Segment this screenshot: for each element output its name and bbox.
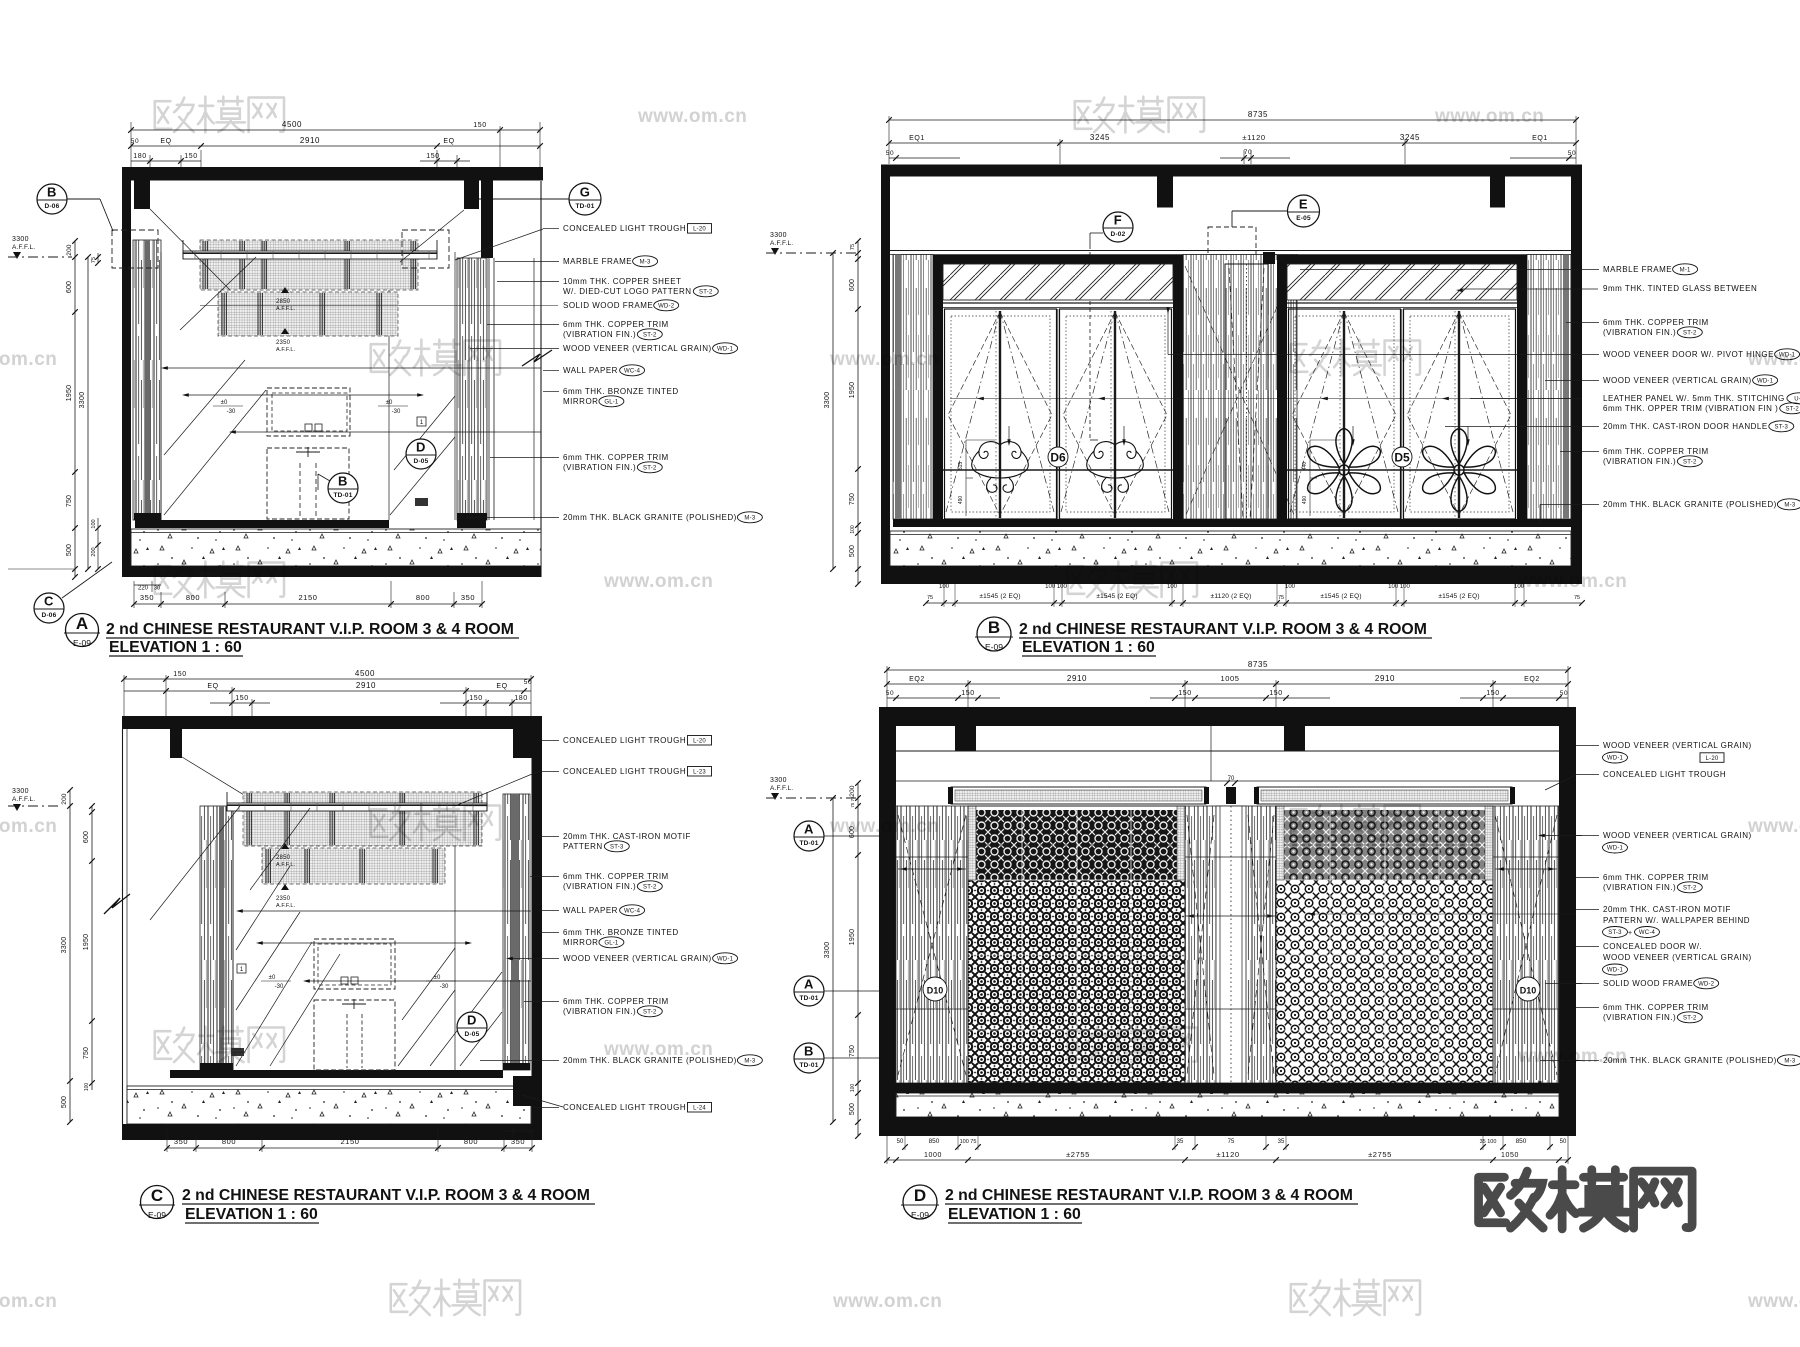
svg-text:D10: D10 [1520,986,1537,996]
svg-text:30: 30 [505,1132,511,1138]
svg-text:CONCEALED LIGHT TROUGH: CONCEALED LIGHT TROUGH [563,224,686,233]
svg-text:WOOD VENEER (VERTICAL GRAIN): WOOD VENEER (VERTICAL GRAIN) [1603,831,1752,840]
svg-text:850: 850 [929,1138,940,1145]
svg-text:www.om.cn: www.om.cn [0,816,57,837]
svg-text:100: 100 [91,519,97,528]
svg-text:3300: 3300 [79,392,86,409]
svg-text:4500: 4500 [355,669,375,678]
svg-text:350: 350 [174,1137,188,1146]
svg-text:ST-2: ST-2 [643,1010,657,1016]
svg-text:WD-2: WD-2 [658,304,675,310]
svg-text:150: 150 [184,153,197,160]
svg-text:2910: 2910 [356,681,376,690]
svg-text:B: B [804,1044,814,1059]
svg-text:±0: ±0 [269,975,276,981]
svg-text:WOOD VENEER (VERTICAL GRAIN): WOOD VENEER (VERTICAL GRAIN) [1603,953,1752,962]
svg-text:ST-2: ST-2 [1683,460,1697,466]
svg-text:EQ: EQ [443,138,454,145]
svg-text:PATTERN: PATTERN [563,842,603,851]
svg-text:GL-1: GL-1 [604,400,619,406]
svg-text:www.om.cn: www.om.cn [0,349,57,370]
svg-text:L-23: L-23 [693,770,706,776]
svg-text:150: 150 [235,695,248,702]
svg-text:SOLID WOOD FRAME: SOLID WOOD FRAME [1603,979,1693,988]
svg-text:50: 50 [131,138,139,145]
svg-text:www.om.cn: www.om.cn [829,349,939,370]
svg-text:ST-2: ST-2 [699,290,713,296]
svg-text:U-5: U-5 [1794,397,1800,403]
svg-text:CONCEALED LIGHT TROUGH: CONCEALED LIGHT TROUGH [563,1103,686,1112]
svg-text:2 nd CHINESE RESTAURANT V.I.P.: 2 nd CHINESE RESTAURANT V.I.P. ROOM 3 & … [182,1187,590,1204]
svg-text:1950: 1950 [849,929,856,945]
svg-text:ST-2: ST-2 [643,885,657,891]
svg-text:490: 490 [958,496,964,505]
svg-text:6mm THK. COPPER TRIM: 6mm THK. COPPER TRIM [563,872,669,881]
svg-text:2910: 2910 [1375,674,1395,683]
svg-text:6mm THK. BRONZE TINTED: 6mm THK. BRONZE TINTED [563,928,679,937]
svg-text:ST-2: ST-2 [1785,407,1799,413]
svg-text:A.F.F.L.: A.F.F.L. [276,903,296,909]
svg-text:75: 75 [927,595,933,601]
svg-text:www.om.cn: www.om.cn [603,571,713,592]
svg-text:2 nd CHINESE RESTAURANT V.I.P.: 2 nd CHINESE RESTAURANT V.I.P. ROOM 3 & … [945,1187,1353,1204]
svg-text:TD-01: TD-01 [333,492,352,499]
svg-text:M-1: M-1 [1680,268,1691,274]
svg-text:35: 35 [1278,1139,1285,1145]
svg-text:50: 50 [897,1139,904,1145]
svg-text:www.om.cn: www.om.cn [829,816,939,837]
svg-text:500: 500 [849,1103,856,1115]
svg-text:D-05: D-05 [465,1031,480,1038]
svg-text:WC-4: WC-4 [1639,930,1656,936]
svg-text:6mm THK. OPPER TRIM (VIBRATION: 6mm THK. OPPER TRIM (VIBRATION FIN ) [1603,404,1778,413]
svg-text:EQ: EQ [496,683,507,690]
svg-text:1005: 1005 [1220,674,1239,683]
svg-text:CONCEALED LIGHT TROUGH: CONCEALED LIGHT TROUGH [563,767,686,776]
svg-text:ELEVATION 1 : 60: ELEVATION 1 : 60 [1022,639,1155,656]
svg-text:CONCEALED LIGHT TROUGH: CONCEALED LIGHT TROUGH [563,736,686,745]
svg-text:180: 180 [133,153,146,160]
svg-text:100: 100 [84,1083,90,1092]
svg-text:(VIBRATION FIN.): (VIBRATION FIN.) [563,882,636,891]
svg-text:ST-2: ST-2 [1683,1016,1697,1022]
svg-text:3300: 3300 [770,232,787,239]
svg-text:(VIBRATION FIN.): (VIBRATION FIN.) [563,463,636,472]
svg-text:www.om.cn: www.om.cn [1747,1291,1800,1312]
svg-text:20mm THK. CAST-IRON MOTIF: 20mm THK. CAST-IRON MOTIF [1603,905,1731,914]
svg-text:L-20: L-20 [693,227,706,233]
svg-text:www.om.cn: www.om.cn [1517,1046,1627,1067]
svg-text:D5: D5 [1394,451,1410,465]
svg-text:8735: 8735 [1248,110,1268,119]
svg-text:TD-01: TD-01 [799,840,818,847]
svg-text:100 75: 100 75 [960,1139,977,1145]
svg-text:-30: -30 [392,409,401,415]
svg-text:3300: 3300 [61,937,68,954]
svg-text:750: 750 [849,493,856,505]
svg-text:TD-01: TD-01 [575,203,594,210]
svg-text:150: 150 [426,153,439,160]
svg-text:6mm THK. BRONZE TINTED: 6mm THK. BRONZE TINTED [563,387,679,396]
svg-text:MARBLE FRAME: MARBLE FRAME [1603,265,1672,274]
svg-text:ST-2: ST-2 [643,466,657,472]
svg-text:WD-1: WD-1 [1757,379,1774,385]
svg-text:20mm THK. BLACK GRANITE (POLIS: 20mm THK. BLACK GRANITE (POLISHED) [1603,500,1777,509]
svg-text:600: 600 [66,281,73,293]
svg-text:D6: D6 [1050,451,1066,465]
svg-text:500: 500 [849,545,856,557]
svg-text:3300: 3300 [824,942,831,959]
svg-text:1950: 1950 [83,934,90,950]
svg-text:WD-2: WD-2 [1698,982,1715,988]
svg-text:±1120: ±1120 [1216,1150,1239,1159]
svg-text:-30: -30 [227,409,236,415]
svg-text:350: 350 [140,593,154,602]
svg-text:L-20: L-20 [1706,756,1719,762]
svg-text:3300: 3300 [824,392,831,409]
svg-text:G: G [580,185,591,200]
svg-text:50: 50 [886,150,894,157]
svg-text:515: 515 [958,462,964,471]
svg-text:±0: ±0 [386,400,393,406]
svg-text:E-09: E-09 [73,638,91,648]
svg-text:75: 75 [1228,1139,1235,1145]
svg-text:750: 750 [849,1045,856,1057]
svg-text:W/. DIED-CUT LOGO PATTERN: W/. DIED-CUT LOGO PATTERN [563,287,692,296]
svg-text:±1545 (2 EQ): ±1545 (2 EQ) [1438,593,1479,600]
svg-text:A: A [76,614,88,633]
svg-text:±1545 (2 EQ): ±1545 (2 EQ) [979,593,1020,600]
svg-text:ST-3: ST-3 [610,845,624,851]
svg-text:850: 850 [1516,1138,1527,1145]
svg-text:D-06: D-06 [45,203,60,210]
svg-text:6mm THK. COPPER TRIM: 6mm THK. COPPER TRIM [1603,318,1709,327]
svg-text:750: 750 [83,1047,90,1059]
svg-text:M-3: M-3 [1784,503,1795,509]
svg-text:600: 600 [849,279,856,291]
svg-text:A.F.F.L.: A.F.F.L. [12,796,35,803]
svg-text:-30: -30 [440,984,449,990]
svg-text:A.F.F.L.: A.F.F.L. [770,785,793,792]
svg-text:(VIBRATION FIN.): (VIBRATION FIN.) [563,330,636,339]
svg-text:150: 150 [473,122,486,129]
svg-text:220: 220 [138,586,149,592]
svg-text:GL-1: GL-1 [604,941,619,947]
svg-text:350: 350 [511,1137,525,1146]
svg-text:MIRROR: MIRROR [563,397,598,406]
svg-text:EQ2: EQ2 [1524,676,1540,683]
svg-text:www.om.cn: www.om.cn [1434,106,1544,127]
svg-text:8735: 8735 [1248,660,1268,669]
svg-text:D: D [914,1186,926,1205]
svg-text:ELEVATION 1 : 60: ELEVATION 1 : 60 [185,1206,318,1223]
svg-text:M-3: M-3 [1784,1059,1795,1065]
svg-text:3300: 3300 [12,788,29,795]
svg-text:2910: 2910 [1067,674,1087,683]
svg-text:75 75: 75 75 [850,796,855,808]
svg-text:CONCEALED DOOR W/.: CONCEALED DOOR W/. [1603,942,1702,951]
svg-text:3300: 3300 [12,236,29,243]
svg-text:6mm THK. COPPER TRIM: 6mm THK. COPPER TRIM [1603,447,1709,456]
svg-text:±0: ±0 [434,975,441,981]
svg-text:WD-1: WD-1 [1607,846,1624,852]
svg-text:TD-01: TD-01 [799,995,818,1002]
svg-text:C: C [44,594,54,609]
svg-text:+: + [1628,930,1632,937]
svg-text:20mm THK. BLACK GRANITE (POLIS: 20mm THK. BLACK GRANITE (POLISHED) [563,513,737,522]
svg-text:75: 75 [850,244,856,250]
svg-text:A.F.F.L.: A.F.F.L. [12,244,35,251]
svg-text:±2755: ±2755 [1066,1150,1090,1159]
svg-text:±1545 (2 EQ): ±1545 (2 EQ) [1320,593,1361,600]
svg-text:200: 200 [849,785,856,797]
svg-text:D-06: D-06 [42,612,57,619]
svg-text:440: 440 [1302,462,1308,471]
svg-text:6mm THK. COPPER TRIM: 6mm THK. COPPER TRIM [563,997,669,1006]
svg-text:2910: 2910 [300,136,320,145]
svg-text:M-3: M-3 [744,516,755,522]
svg-text:600: 600 [83,831,90,843]
svg-text:2 nd CHINESE RESTAURANT V.I.P.: 2 nd CHINESE RESTAURANT V.I.P. ROOM 3 & … [1019,621,1427,638]
svg-text:9mm THK. TINTED GLASS BETWEEN: 9mm THK. TINTED GLASS BETWEEN [1603,284,1757,293]
svg-text:2150: 2150 [340,1137,359,1146]
svg-text:2850: 2850 [276,855,291,861]
svg-text:A: A [804,822,814,837]
svg-text:D-02: D-02 [1111,231,1126,238]
svg-text:M-3: M-3 [640,260,651,266]
svg-text:E: E [1299,197,1308,212]
svg-text:±1120: ±1120 [1242,133,1265,142]
svg-text:20mm THK. CAST-IRON MOTIF: 20mm THK. CAST-IRON MOTIF [563,832,691,841]
svg-text:1000: 1000 [924,1152,942,1159]
svg-text:LEATHER PANEL W/. 5mm THK. STI: LEATHER PANEL W/. 5mm THK. STITCHING [1603,394,1785,403]
svg-text:www.om.cn: www.om.cn [1747,349,1800,370]
svg-text:www.om.cn: www.om.cn [1747,816,1800,837]
svg-text:20mm THK. BLACK GRANITE (POLIS: 20mm THK. BLACK GRANITE (POLISHED) [1603,1056,1777,1065]
svg-text:D10: D10 [927,986,944,996]
svg-text:(VIBRATION FIN.): (VIBRATION FIN.) [1603,328,1676,337]
svg-text:800: 800 [222,1137,236,1146]
svg-text:200: 200 [61,793,68,805]
svg-text:www.om.cn: www.om.cn [1517,571,1627,592]
svg-text:3300: 3300 [770,777,787,784]
svg-text:L-20: L-20 [693,739,706,745]
svg-text:WALL PAPER: WALL PAPER [563,906,618,915]
svg-text:L-24: L-24 [693,1106,706,1112]
svg-text:150: 150 [173,671,186,678]
svg-text:PATTERN W/. WALLPAPER BEHIND: PATTERN W/. WALLPAPER BEHIND [1603,916,1750,925]
svg-text:M-3: M-3 [744,1059,755,1065]
svg-text:ST-3: ST-3 [1775,425,1789,431]
svg-text:200: 200 [66,244,73,256]
svg-text:MIRROR: MIRROR [563,938,598,947]
svg-text:EQ: EQ [207,683,218,690]
svg-text:100: 100 [1285,584,1296,590]
svg-text:2350: 2350 [276,896,291,902]
svg-text:ST-3: ST-3 [1608,930,1622,936]
svg-text:750: 750 [66,495,73,507]
svg-text:E-09: E-09 [148,1210,166,1220]
svg-text:3245: 3245 [1090,133,1110,142]
svg-text:A.F.F.L.: A.F.F.L. [770,240,793,247]
svg-text:WC-4: WC-4 [624,909,641,915]
svg-text:EQ: EQ [160,138,171,145]
svg-text:www.om.cn: www.om.cn [0,1291,57,1312]
svg-text:100 100: 100 100 [1045,584,1067,590]
svg-text:E-05: E-05 [1296,215,1311,222]
svg-text:WOOD VENEER (VERTICAL GRAIN): WOOD VENEER (VERTICAL GRAIN) [563,954,712,963]
svg-text:35: 35 [1177,1139,1184,1145]
svg-text:WD-1: WD-1 [1607,968,1624,974]
svg-text:100: 100 [1167,584,1178,590]
svg-text:35 100: 35 100 [1480,1139,1497,1145]
svg-text:6mm THK. COPPER TRIM: 6mm THK. COPPER TRIM [1603,1003,1709,1012]
svg-text:EQ2: EQ2 [909,676,925,683]
svg-text:100: 100 [939,584,950,590]
svg-text:-30: -30 [275,984,284,990]
svg-text:SOLID WOOD FRAME: SOLID WOOD FRAME [563,301,653,310]
svg-text:WD-1: WD-1 [717,957,734,963]
svg-text:TD-01: TD-01 [799,1062,818,1069]
svg-text:WD-1: WD-1 [717,347,734,353]
svg-text:2 nd CHINESE RESTAURANT V.I.P.: 2 nd CHINESE RESTAURANT V.I.P. ROOM 3 & … [106,621,514,638]
svg-text:WOOD VENEER (VERTICAL GRAIN): WOOD VENEER (VERTICAL GRAIN) [1603,741,1752,750]
svg-text:D-05: D-05 [414,458,429,465]
svg-text:2350: 2350 [276,340,291,346]
svg-text:220: 220 [518,1132,529,1138]
svg-text:F: F [1114,213,1122,228]
svg-text:B: B [988,618,1000,637]
svg-text:D: D [416,440,426,455]
svg-text:A.F.F.L.: A.F.F.L. [276,306,296,312]
svg-text:100: 100 [850,525,856,534]
svg-text:WOOD VENEER (VERTICAL GRAIN): WOOD VENEER (VERTICAL GRAIN) [1603,376,1752,385]
svg-text:50: 50 [1568,150,1576,157]
svg-text:www.om.cn: www.om.cn [832,1291,942,1312]
svg-text:CONCEALED LIGHT TROUGH: CONCEALED LIGHT TROUGH [1603,770,1726,779]
svg-text:3245: 3245 [1400,133,1420,142]
svg-text:1950: 1950 [849,382,856,398]
svg-text:10mm THK. COPPER SHEET: 10mm THK. COPPER SHEET [563,277,681,286]
svg-text:B: B [338,474,348,489]
svg-text:(VIBRATION FIN.): (VIBRATION FIN.) [563,1007,636,1016]
svg-text:800: 800 [416,593,430,602]
svg-text:C: C [151,1186,163,1205]
svg-text:A: A [804,977,814,992]
svg-text:EQ1: EQ1 [909,135,925,142]
svg-text:WC-4: WC-4 [624,369,641,375]
svg-text:75: 75 [1278,595,1284,601]
svg-text:E-09: E-09 [911,1210,929,1220]
svg-text:±0: ±0 [221,400,228,406]
svg-text:6mm THK. COPPER TRIM: 6mm THK. COPPER TRIM [563,453,669,462]
svg-text:180: 180 [514,695,527,702]
svg-text:500: 500 [66,544,73,556]
svg-text:(VIBRATION FIN.): (VIBRATION FIN.) [1603,457,1676,466]
svg-text:E-09: E-09 [985,642,1003,652]
svg-text:ELEVATION 1 : 60: ELEVATION 1 : 60 [109,639,242,656]
svg-text:50: 50 [1560,1139,1567,1145]
svg-text:50: 50 [1560,690,1568,697]
svg-text:(VIBRATION FIN.): (VIBRATION FIN.) [1603,1013,1676,1022]
svg-text:www.om.cn: www.om.cn [603,1039,713,1060]
svg-text:150: 150 [469,695,482,702]
svg-text:ST-2: ST-2 [643,333,657,339]
svg-text:WD-1: WD-1 [1607,756,1624,762]
svg-text:www.om.cn: www.om.cn [637,106,747,127]
svg-text:75: 75 [91,257,97,263]
svg-text:B: B [47,185,57,200]
svg-text:±1120 (2 EQ): ±1120 (2 EQ) [1211,593,1252,600]
svg-text:ST-2: ST-2 [1683,886,1697,892]
svg-text:100 100: 100 100 [1388,584,1410,590]
svg-text:MARBLE FRAME: MARBLE FRAME [563,257,632,266]
svg-text:A.F.F.L.: A.F.F.L. [276,862,296,868]
svg-text:100: 100 [850,1084,856,1093]
svg-text:490: 490 [1302,496,1308,505]
svg-text:ST-2: ST-2 [1683,331,1697,337]
svg-text:WALL PAPER: WALL PAPER [563,366,618,375]
svg-text:200: 200 [91,547,97,556]
svg-text:2850: 2850 [276,299,291,305]
svg-text:6mm THK. COPPER TRIM: 6mm THK. COPPER TRIM [1603,873,1709,882]
svg-text:800: 800 [464,1137,478,1146]
svg-text:2150: 2150 [298,593,317,602]
svg-text:1050: 1050 [1501,1152,1519,1159]
svg-text:1950: 1950 [66,385,73,401]
svg-text:D: D [467,1013,477,1028]
svg-text:500: 500 [61,1096,68,1108]
svg-text:±2755: ±2755 [1368,1150,1392,1159]
svg-text:WOOD VENEER (VERTICAL GRAIN): WOOD VENEER (VERTICAL GRAIN) [563,344,712,353]
svg-text:20mm THK. CAST-IRON DOOR HANDL: 20mm THK. CAST-IRON DOOR HANDLE [1603,422,1768,431]
svg-text:EQ1: EQ1 [1532,135,1548,142]
svg-text:A.F.F.L.: A.F.F.L. [276,347,296,353]
svg-text:350: 350 [461,593,475,602]
svg-text:6mm THK. COPPER TRIM: 6mm THK. COPPER TRIM [563,320,669,329]
svg-text:(VIBRATION FIN.): (VIBRATION FIN.) [1603,883,1676,892]
svg-text:ELEVATION 1 : 60: ELEVATION 1 : 60 [948,1206,1081,1223]
svg-text:75: 75 [1574,595,1580,601]
